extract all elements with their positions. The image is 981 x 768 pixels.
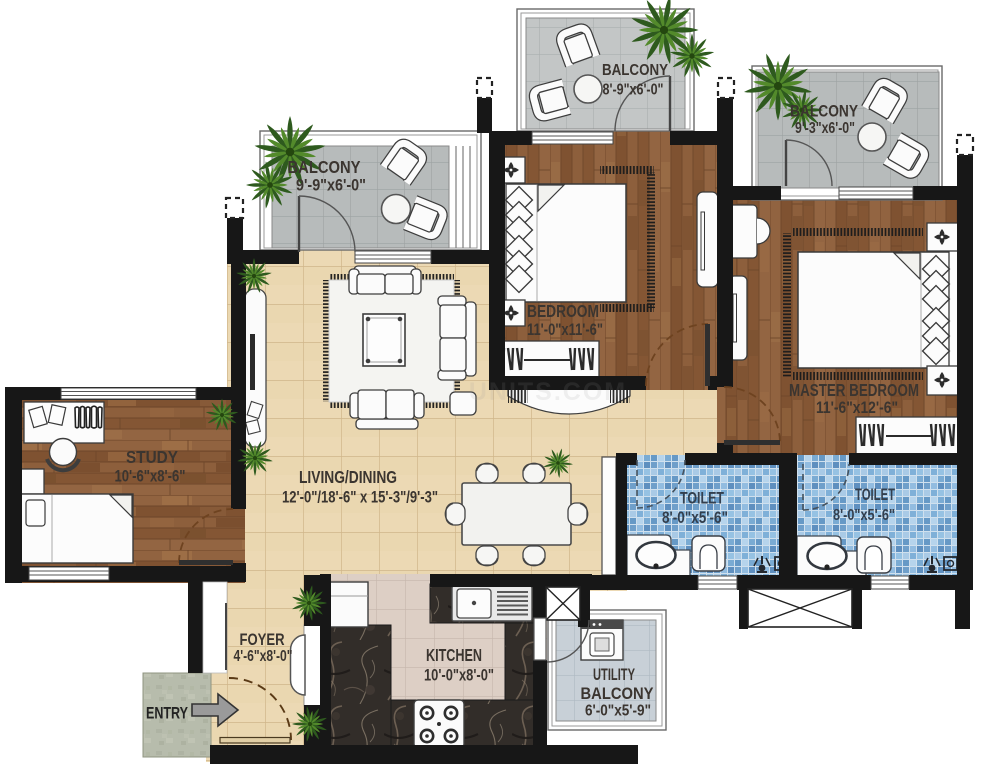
svg-text:4'-6"x8'-0": 4'-6"x8'-0" — [234, 648, 293, 665]
svg-text:11'-6"x12'-6": 11'-6"x12'-6" — [816, 399, 898, 417]
svg-text:6'-0"x5'-9": 6'-0"x5'-9" — [585, 703, 651, 720]
svg-text:UNITS.COM: UNITS.COM — [469, 378, 627, 406]
svg-text:8'-9"x6'-0": 8'-9"x6'-0" — [603, 82, 664, 99]
svg-text:UTILITY: UTILITY — [593, 666, 635, 684]
svg-text:MASTER BEDROOM: MASTER BEDROOM — [789, 380, 919, 400]
svg-text:FOYER: FOYER — [240, 630, 285, 649]
svg-text:KITCHEN: KITCHEN — [426, 645, 482, 665]
svg-text:TOILET: TOILET — [680, 489, 724, 508]
svg-text:LIVING/DINING: LIVING/DINING — [299, 467, 397, 487]
svg-text:BALCONY: BALCONY — [581, 685, 654, 703]
svg-text:12'-0"/18'-6" x 15'-3"/9'-3": 12'-0"/18'-6" x 15'-3"/9'-3" — [282, 488, 438, 507]
svg-text:BALCONY: BALCONY — [602, 62, 668, 79]
svg-text:STUDY: STUDY — [126, 447, 178, 467]
svg-text:BALCONY: BALCONY — [790, 103, 858, 121]
svg-text:ENTRY: ENTRY — [146, 705, 188, 723]
svg-text:8'-0"x5'-6": 8'-0"x5'-6" — [662, 509, 728, 527]
svg-text:8'-0"x5'-6": 8'-0"x5'-6" — [833, 507, 895, 524]
svg-text:11'-0"x11'-6": 11'-0"x11'-6" — [527, 321, 603, 339]
svg-text:10'-6"x8'-6": 10'-6"x8'-6" — [115, 468, 186, 486]
svg-text:BALCONY: BALCONY — [288, 157, 361, 177]
svg-text:TOILET: TOILET — [855, 486, 895, 504]
svg-text:BEDROOM: BEDROOM — [527, 301, 599, 321]
svg-text:9'-3"x6'-0": 9'-3"x6'-0" — [795, 120, 855, 137]
svg-text:10'-0"x8'-0": 10'-0"x8'-0" — [424, 667, 494, 685]
svg-text:9'-9"x6'-0": 9'-9"x6'-0" — [296, 177, 366, 195]
